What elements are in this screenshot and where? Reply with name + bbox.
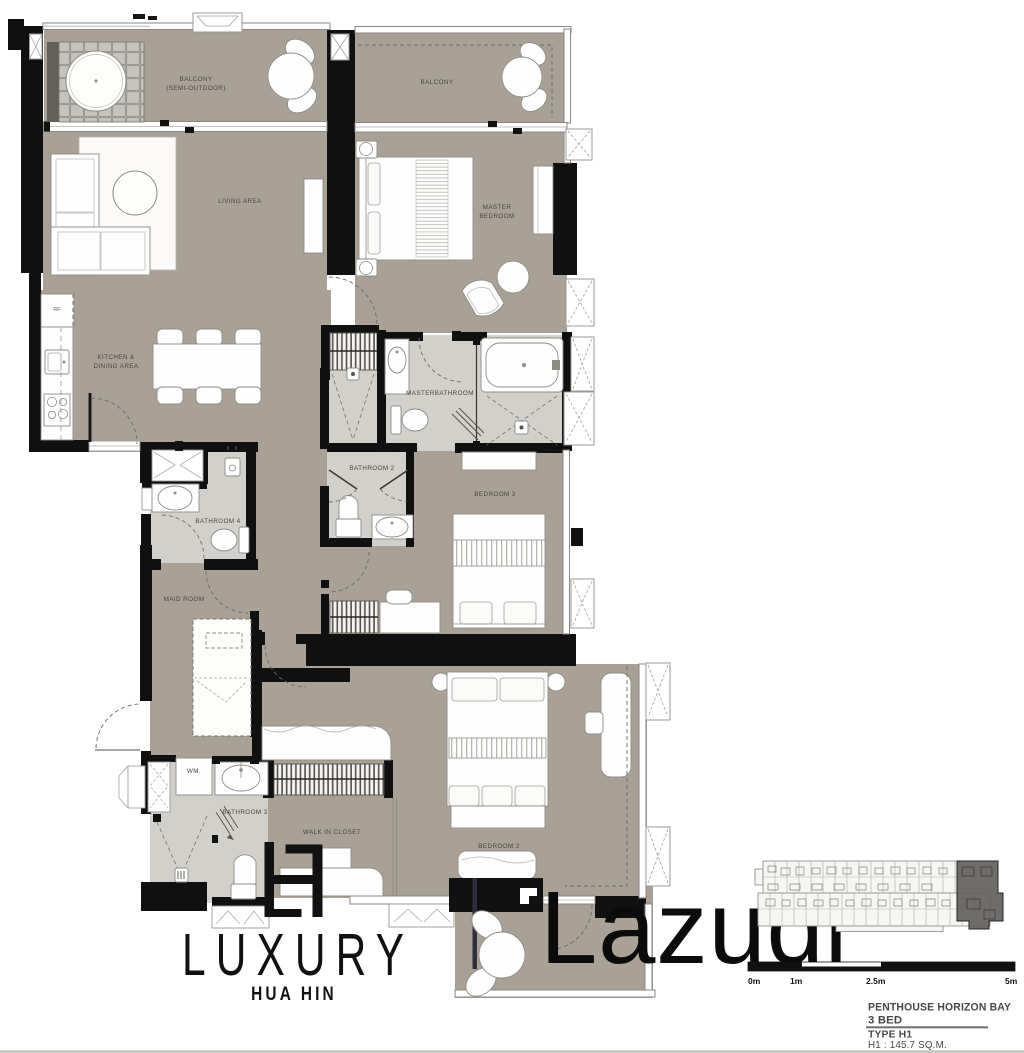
svg-text:H1 : 145.7 SQ.M.: H1 : 145.7 SQ.M. [868,1040,947,1051]
svg-text:MAID ROOM: MAID ROOM [164,596,205,603]
svg-text:BALCONY: BALCONY [421,79,454,86]
svg-text:BATHROOM 2: BATHROOM 2 [349,465,394,472]
svg-text:TYPE H1: TYPE H1 [868,1030,912,1041]
svg-text:LUXURY: LUXURY [182,921,414,988]
svg-text:1m: 1m [790,976,803,986]
svg-text:WALK IN CLOSET: WALK IN CLOSET [303,829,361,836]
svg-text:BEDROOM: BEDROOM [479,213,514,220]
svg-text:0m: 0m [748,976,761,986]
svg-text:BEDROOM 3: BEDROOM 3 [474,491,515,498]
svg-text:WM.: WM. [187,768,201,775]
svg-text:DINING AREA: DINING AREA [94,363,139,370]
svg-text:PENTHOUSE HORIZON BAY: PENTHOUSE HORIZON BAY [868,1001,1012,1013]
svg-text:2.5m: 2.5m [866,976,886,986]
svg-text:KITCHEN &: KITCHEN & [97,354,135,361]
svg-text:MASTER: MASTER [483,204,512,211]
svg-text:HUA HIN: HUA HIN [251,982,337,1004]
svg-text:BATHROOM 3: BATHROOM 3 [222,809,267,816]
svg-text:RF: RF [53,307,61,313]
svg-text:3 BED: 3 BED [868,1015,902,1027]
svg-text:5m: 5m [1005,976,1018,986]
svg-text:BEDROOM 2: BEDROOM 2 [478,843,519,850]
svg-text:MASTERBATHROOM: MASTERBATHROOM [406,390,474,397]
svg-text:(SEMI-OUTDOOR): (SEMI-OUTDOOR) [166,85,225,92]
svg-text:LIVING AREA: LIVING AREA [218,198,262,205]
svg-text:BALCONY: BALCONY [180,76,213,83]
svg-text:BATHROOM 4: BATHROOM 4 [195,518,240,525]
